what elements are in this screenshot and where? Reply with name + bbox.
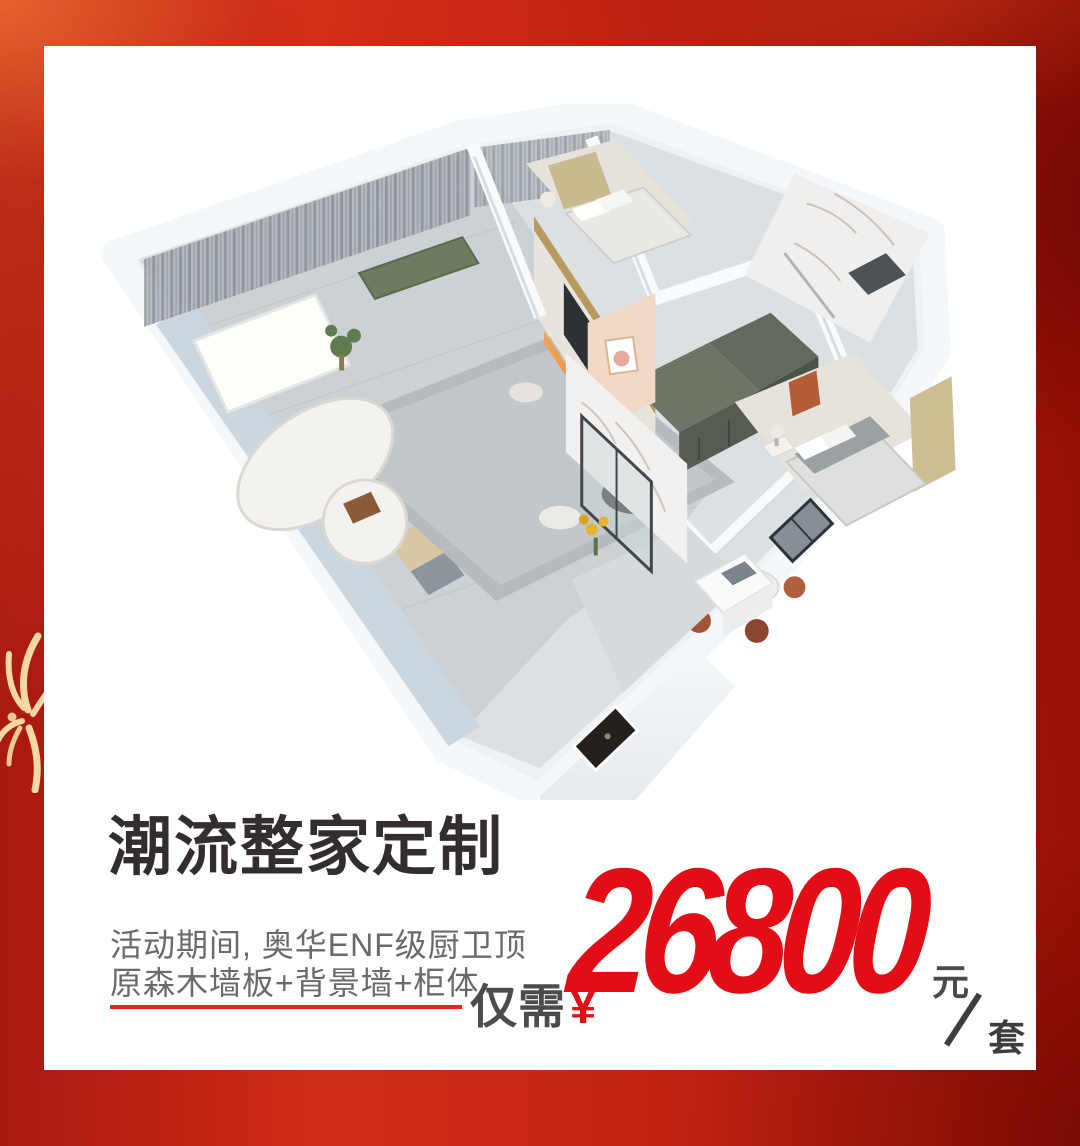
price-label: 仅需 (470, 980, 566, 1033)
price-unit-denominator: 套 (988, 1008, 1025, 1062)
framed-art (605, 337, 637, 374)
price-amount: 26800 (564, 842, 925, 1020)
apartment-3d-render (96, 104, 980, 800)
firework-dot (8, 713, 17, 722)
headline: 潮流整家定制 (108, 812, 504, 882)
poster-card: 潮流整家定制 活动期间, 奥华ENF级厨卫顶 原森木墙板+背景墙+柜体 仅需¥ … (44, 46, 1036, 1070)
price-underline (110, 1005, 462, 1009)
price-unit-numerator: 元 (932, 952, 969, 1006)
price-unit: 元 套 (924, 944, 1039, 1064)
door-handle (605, 733, 611, 739)
nightstand (540, 191, 556, 207)
subline-2: 原森木墙板+背景墙+柜体 (110, 958, 479, 1004)
